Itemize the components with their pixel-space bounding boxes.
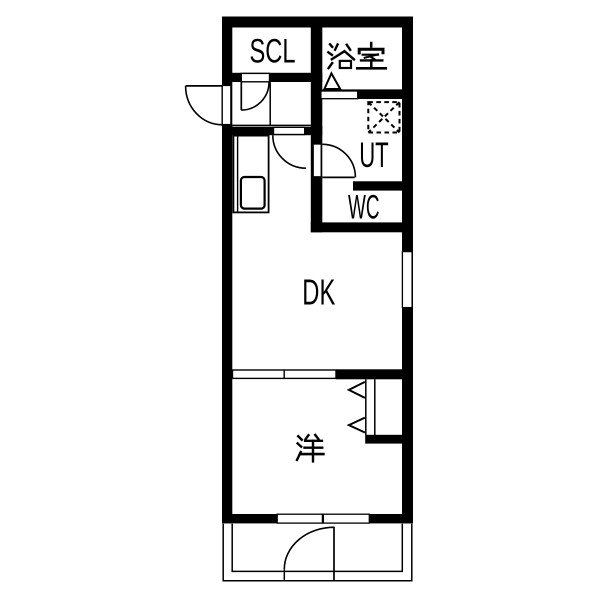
svg-text:DK: DK xyxy=(302,272,335,313)
svg-text:WC: WC xyxy=(348,188,380,226)
svg-text:UT: UT xyxy=(359,136,389,175)
svg-text:SCL: SCL xyxy=(250,33,296,71)
